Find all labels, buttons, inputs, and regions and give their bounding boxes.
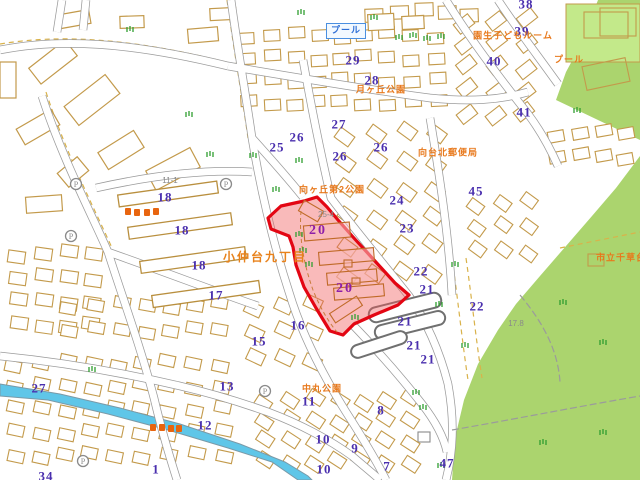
house-footprint xyxy=(275,349,295,367)
house-footprint xyxy=(10,292,29,306)
shop-icon xyxy=(150,424,156,431)
house-footprint xyxy=(256,430,275,448)
house-footprint xyxy=(60,325,78,339)
vegetation-icon xyxy=(296,157,302,163)
house-footprint xyxy=(354,99,371,111)
house-footprint xyxy=(84,382,102,396)
house-footprint xyxy=(367,179,388,199)
house-footprint xyxy=(188,446,206,460)
house-footprint xyxy=(264,30,281,42)
house-footprint xyxy=(394,235,415,255)
building-footprint xyxy=(402,15,425,29)
vegetation-icon xyxy=(396,34,402,40)
shop-icon xyxy=(176,425,182,432)
house-footprint xyxy=(336,178,357,198)
house-footprint xyxy=(59,302,77,316)
house-footprint xyxy=(185,321,203,335)
house-footprint xyxy=(403,55,420,67)
house-footprint xyxy=(6,400,24,414)
map-viewport[interactable]: PPPPP 3829283940412526272626242345222122… xyxy=(0,0,640,480)
vegetation-icon xyxy=(207,151,213,157)
road xyxy=(83,0,86,30)
house-footprint xyxy=(495,241,514,259)
house-footprint xyxy=(415,3,433,17)
house-footprint xyxy=(333,53,350,65)
apartment-slab xyxy=(128,213,233,239)
pool-facility-area xyxy=(566,4,640,62)
vegetation-icon xyxy=(186,111,192,117)
shop-icon xyxy=(153,208,159,215)
house-footprint xyxy=(210,323,228,337)
house-footprint xyxy=(617,127,635,141)
house-footprint xyxy=(35,293,54,307)
shop-icon xyxy=(144,209,150,216)
house-footprint xyxy=(519,245,538,263)
house-footprint xyxy=(32,451,50,465)
highlight-building xyxy=(303,222,350,241)
house-footprint xyxy=(245,324,265,342)
house-footprint xyxy=(456,54,478,75)
house-footprint xyxy=(132,451,150,465)
house-footprint xyxy=(396,183,417,203)
house-footprint xyxy=(379,99,396,111)
road xyxy=(57,0,62,32)
house-footprint xyxy=(58,405,76,419)
house-footprint xyxy=(211,359,229,373)
house-footprint xyxy=(35,268,54,282)
svg-text:P: P xyxy=(224,180,229,189)
parking-icon: P xyxy=(71,179,82,190)
vegetation-icon xyxy=(438,462,444,468)
building-footprint xyxy=(0,62,16,98)
house-footprint xyxy=(158,353,176,367)
svg-text:P: P xyxy=(74,180,79,189)
apartment-slab xyxy=(140,247,247,274)
house-footprint xyxy=(105,450,123,464)
house-footprint xyxy=(288,27,305,39)
house-footprint xyxy=(9,271,28,285)
highlight-building xyxy=(352,278,360,284)
house-footprint xyxy=(397,121,418,141)
house-footprint xyxy=(184,356,202,370)
house-footprint xyxy=(466,198,485,216)
house-footprint xyxy=(108,380,126,394)
house-footprint xyxy=(520,192,539,210)
house-footprint xyxy=(616,153,634,167)
parking-icon: P xyxy=(260,386,271,397)
house-footprint xyxy=(35,320,54,334)
apartment-slab xyxy=(118,181,219,207)
house-footprint xyxy=(7,423,25,437)
house-footprint xyxy=(515,59,537,80)
house-footprint xyxy=(572,127,590,141)
house-footprint xyxy=(354,395,373,413)
house-footprint xyxy=(57,428,75,442)
parking-icon: P xyxy=(221,179,232,190)
house-footprint xyxy=(84,273,103,287)
house-footprint xyxy=(456,104,478,125)
house-footprint xyxy=(395,210,416,230)
house-footprint xyxy=(264,49,281,61)
building-footprint xyxy=(64,75,120,126)
house-footprint xyxy=(467,219,486,237)
house-footprint xyxy=(334,127,355,147)
road xyxy=(0,43,228,66)
house-footprint xyxy=(367,149,388,169)
house-footprint xyxy=(572,147,590,161)
house-footprint xyxy=(377,392,396,410)
house-footprint xyxy=(430,72,447,84)
building-footprint xyxy=(98,130,144,169)
house-footprint xyxy=(7,450,25,464)
house-footprint xyxy=(376,409,395,427)
house-footprint xyxy=(428,53,445,65)
house-footprint xyxy=(132,427,150,441)
house-footprint xyxy=(367,210,388,230)
house-footprint xyxy=(378,51,395,63)
parking-icon: P xyxy=(66,231,77,242)
house-footprint xyxy=(312,30,329,42)
house-footprint xyxy=(311,55,328,67)
shop-icon xyxy=(168,425,174,432)
boundary-dashed-line xyxy=(466,258,482,378)
house-footprint xyxy=(7,250,26,264)
house-footprint xyxy=(306,389,325,407)
house-footprint xyxy=(274,321,294,339)
house-footprint xyxy=(422,233,443,253)
house-footprint xyxy=(186,404,204,418)
house-footprint xyxy=(81,424,99,438)
svg-text:P: P xyxy=(263,387,268,396)
svg-text:P: P xyxy=(81,457,86,466)
house-footprint xyxy=(401,455,420,473)
house-footprint xyxy=(56,447,74,461)
building-footprint xyxy=(25,195,62,213)
house-footprint xyxy=(375,431,394,449)
house-footprint xyxy=(456,77,478,98)
shop-icon xyxy=(134,209,140,216)
house-footprint xyxy=(280,392,299,410)
house-footprint xyxy=(246,348,266,366)
house-footprint xyxy=(494,216,513,234)
house-footprint xyxy=(331,95,348,107)
house-footprint xyxy=(335,153,356,173)
parking-icon: P xyxy=(78,456,89,467)
highlight-building xyxy=(344,260,352,267)
house-footprint xyxy=(404,76,421,88)
house-footprint xyxy=(520,218,539,236)
building-footprint xyxy=(187,27,218,44)
house-footprint xyxy=(595,124,613,138)
vegetation-icon xyxy=(273,186,279,192)
house-footprint xyxy=(421,265,442,285)
park-building xyxy=(418,432,430,442)
shop-icon xyxy=(159,424,165,431)
house-footprint xyxy=(106,423,124,437)
house-footprint xyxy=(400,411,419,429)
house-footprint xyxy=(356,30,373,42)
vegetation-icon xyxy=(298,9,304,15)
house-footprint xyxy=(33,427,51,441)
house-footprint xyxy=(34,247,53,261)
house-footprint xyxy=(85,247,104,261)
house-footprint xyxy=(87,299,105,313)
house-footprint xyxy=(334,33,351,45)
house-footprint xyxy=(397,151,418,171)
building-footprint xyxy=(120,16,144,29)
map-canvas[interactable]: PPPPP xyxy=(0,0,640,480)
house-footprint xyxy=(287,99,304,111)
house-footprint xyxy=(468,240,487,258)
house-footprint xyxy=(59,379,77,393)
house-footprint xyxy=(33,377,51,391)
house-footprint xyxy=(366,124,387,144)
house-footprint xyxy=(355,49,372,61)
house-footprint xyxy=(88,321,106,335)
house-footprint xyxy=(595,149,613,163)
house-footprint xyxy=(60,244,79,258)
house-footprint xyxy=(494,195,513,213)
house-footprint xyxy=(486,31,508,52)
house-footprint xyxy=(304,455,323,473)
house-footprint xyxy=(264,99,281,111)
house-footprint xyxy=(215,423,233,437)
svg-text:P: P xyxy=(69,232,74,241)
house-footprint xyxy=(485,105,507,126)
house-footprint xyxy=(216,450,234,464)
house-footprint xyxy=(10,316,29,330)
shop-icon xyxy=(125,208,131,215)
house-footprint xyxy=(162,325,180,339)
house-footprint xyxy=(60,270,79,284)
house-footprint xyxy=(401,435,420,453)
house-footprint xyxy=(33,401,51,415)
house-footprint xyxy=(281,431,300,449)
